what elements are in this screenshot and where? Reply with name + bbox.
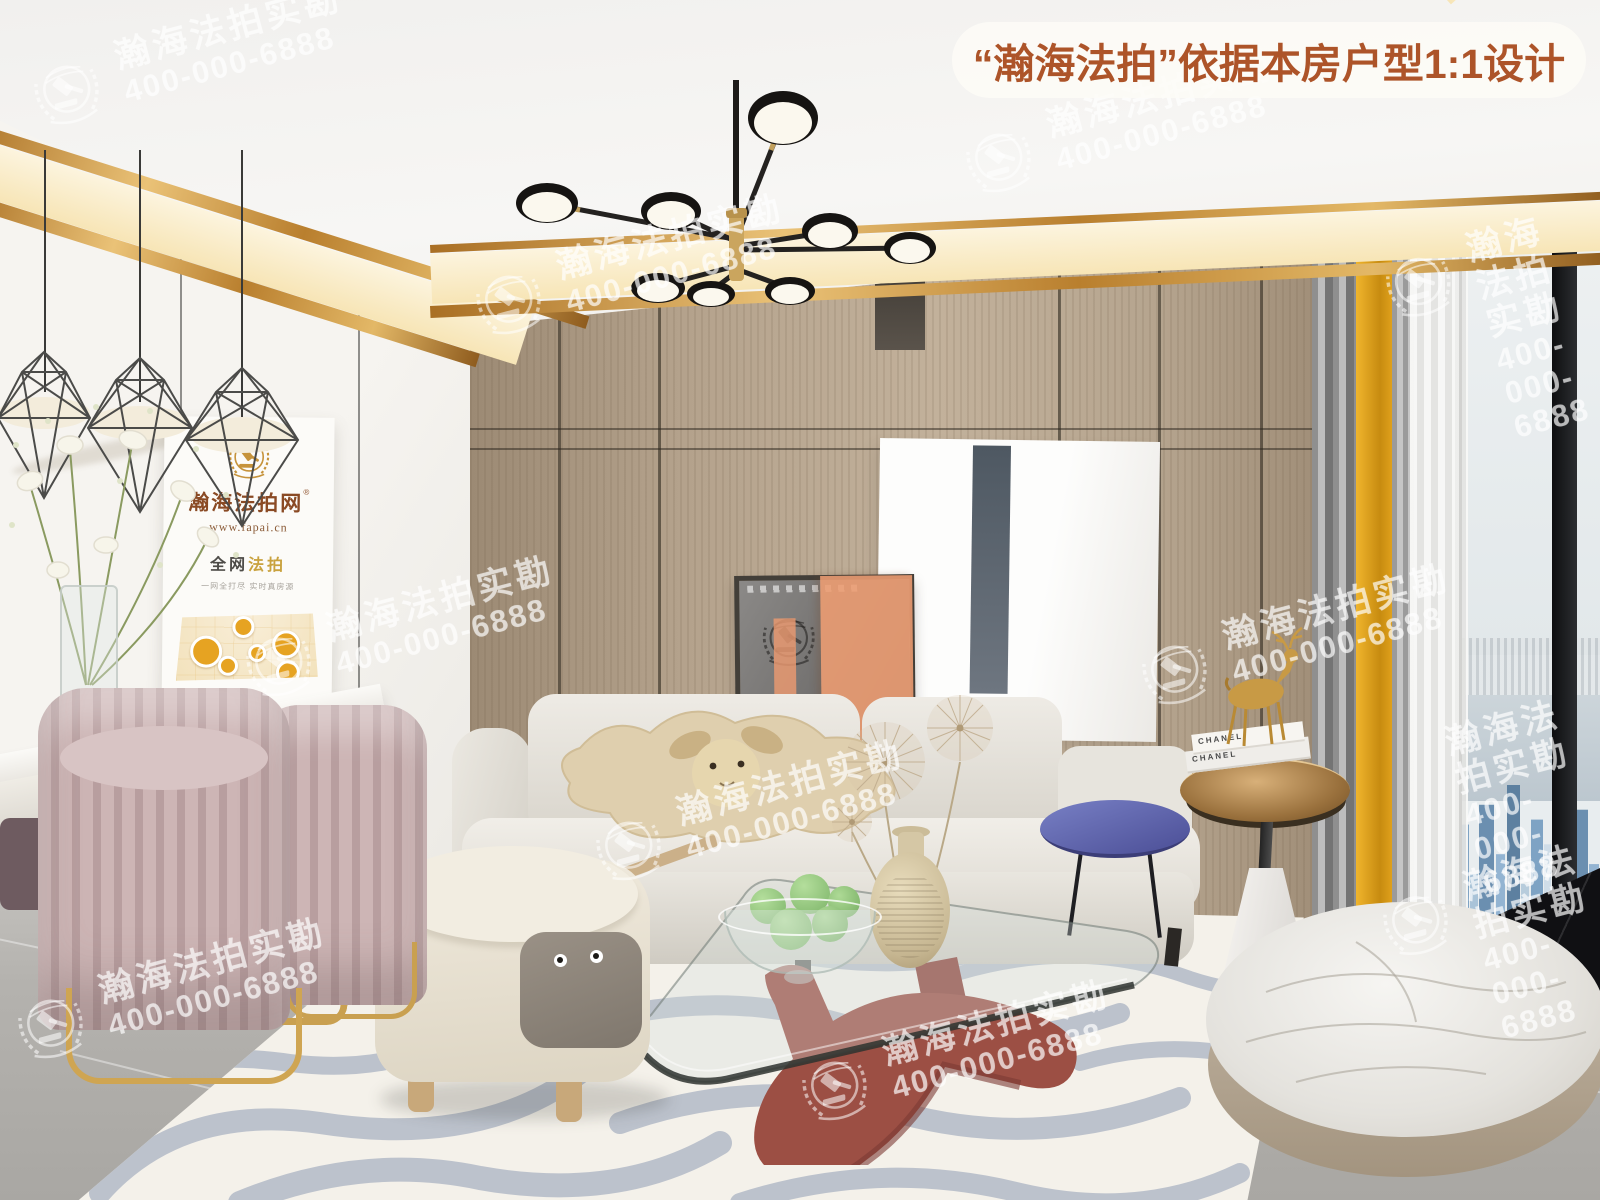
chandelier bbox=[460, 80, 980, 325]
glass-bowl-rim bbox=[718, 898, 882, 936]
yellow-curtain bbox=[1356, 198, 1396, 1012]
sheep-face bbox=[520, 932, 642, 1048]
lamp-discs bbox=[516, 91, 936, 307]
watermark-text: 瀚海法拍实勘400-000-6888 bbox=[109, 0, 355, 110]
sheep-pupil bbox=[593, 953, 599, 959]
promo-banner: “瀚海法拍”依据本房户型1:1设计 bbox=[952, 22, 1586, 98]
wall-seam bbox=[358, 280, 360, 720]
promo-banner-text: “瀚海法拍”依据本房户型1:1设计 bbox=[973, 30, 1565, 90]
watermark-line2: 400-000-6888 bbox=[1052, 84, 1287, 178]
window-frame bbox=[1455, 200, 1600, 208]
chair-gold-base bbox=[285, 942, 417, 1019]
living-room-photo: 瀚海法拍网® www.fapai.cn 全网法拍 一网全打尽 实时真房源 bbox=[0, 0, 1600, 1200]
map-pin-icon bbox=[272, 630, 300, 658]
marble-vein bbox=[46, 178, 294, 308]
sheep-eye bbox=[554, 954, 567, 967]
map-pin-icon bbox=[276, 660, 300, 684]
chair-gold-base bbox=[66, 988, 302, 1084]
cushion-creases bbox=[1206, 902, 1600, 1137]
panel-line bbox=[470, 428, 1320, 430]
flower-arrangement bbox=[0, 385, 260, 715]
gold-deer-figurine bbox=[1194, 626, 1314, 754]
marble-vein bbox=[134, 104, 425, 216]
sky bbox=[1455, 200, 1600, 655]
floor-cushion-top bbox=[1206, 902, 1600, 1137]
bowl-foot bbox=[784, 970, 814, 984]
sheep-eye bbox=[590, 950, 603, 963]
ottoman-leg bbox=[556, 1076, 582, 1122]
fruit-bowl-group bbox=[712, 858, 890, 998]
panel-gray-stripe bbox=[970, 445, 1011, 694]
dandelion-heads bbox=[832, 695, 993, 842]
cove-light bbox=[1090, 0, 1486, 4]
watermark-line2: 400-000-6888 bbox=[120, 16, 355, 110]
pink-dining-chair bbox=[38, 688, 290, 1030]
watermark-line1: 瀚海法拍实勘 bbox=[110, 0, 346, 77]
chair-seat bbox=[60, 726, 268, 790]
sheer-curtain bbox=[1410, 198, 1468, 1014]
sheep-pupil bbox=[557, 957, 563, 963]
